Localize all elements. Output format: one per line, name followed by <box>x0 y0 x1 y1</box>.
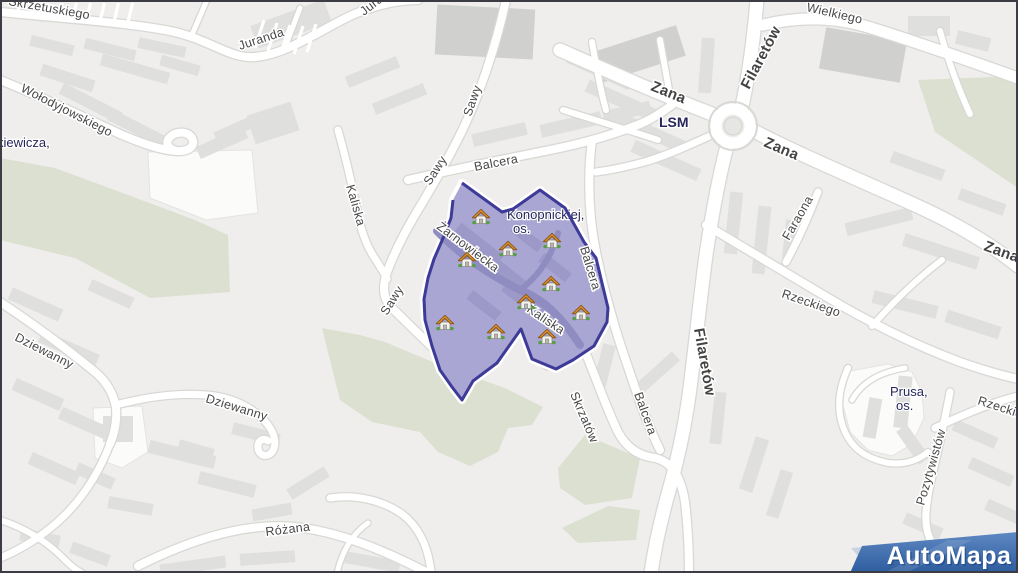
district-label: LSM <box>659 114 689 130</box>
logo-text: AutoMapa <box>887 542 1012 570</box>
roundabout <box>709 102 757 150</box>
district-label: Prusa, <box>890 384 928 399</box>
district-label: os. <box>513 221 530 236</box>
district-label: os. <box>896 398 913 413</box>
map-canvas[interactable]: kiewicza,LSMKonopnickiej,os.Prusa,os. Sk… <box>0 0 1018 573</box>
map-viewport[interactable]: kiewicza,LSMKonopnickiej,os.Prusa,os. Sk… <box>0 0 1018 573</box>
building <box>435 4 535 59</box>
district-label: kiewicza, <box>0 135 50 150</box>
